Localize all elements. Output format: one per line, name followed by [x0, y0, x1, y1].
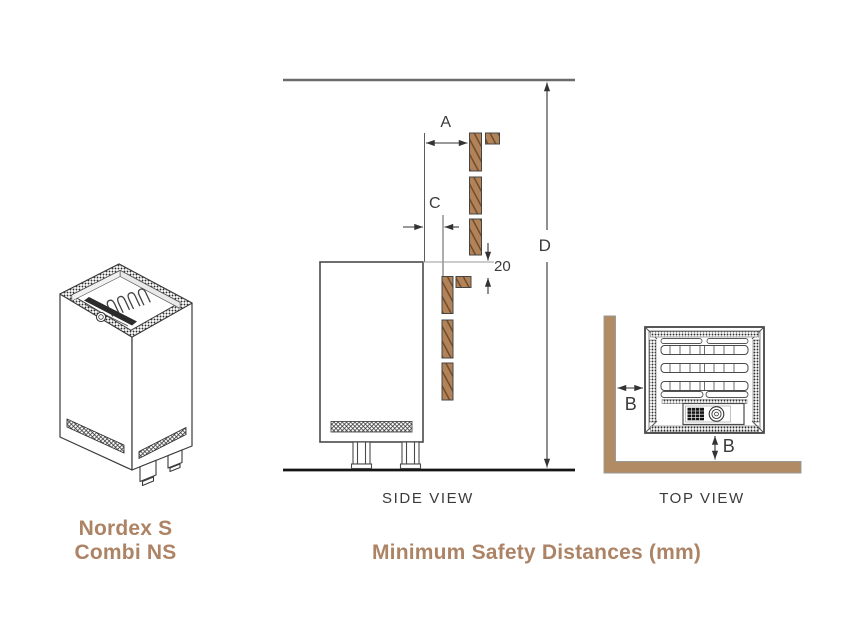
control-panel: [683, 404, 744, 425]
side-view-caption: SIDE VIEW: [343, 491, 513, 506]
product-name: Nordex S Combi NS: [45, 517, 206, 564]
dimension-20-label: 20: [494, 259, 524, 274]
dimension-b-rear-label: B: [709, 437, 749, 455]
dimension-c-label: C: [415, 196, 455, 212]
fragrance-cup: [96, 312, 105, 321]
control-knob: [709, 407, 724, 422]
product-name-line1: Nordex S: [45, 517, 206, 541]
heater-side-outline: [320, 262, 423, 442]
side-view-diagram: [283, 80, 575, 470]
top-view-caption: TOP VIEW: [617, 491, 787, 506]
dimension-b-wall-label: B: [611, 395, 651, 413]
page-title: Minimum Safety Distances (mm): [336, 541, 737, 565]
heater-top-outline: [645, 327, 764, 433]
heater-side-legs: [352, 442, 421, 469]
dimension-a-label: A: [426, 115, 466, 131]
element-slat-rows: [661, 346, 748, 391]
product-name-line2: Combi NS: [45, 541, 206, 565]
safety-distance-diagram-page: A C D 20 B B SIDE VIEW TOP VIEW Nordex S…: [0, 0, 860, 619]
wall-battens-lower: [442, 277, 471, 401]
wall-battens-upper: [470, 133, 500, 255]
vent-grille: [331, 422, 412, 433]
dimension-d-label: D: [525, 237, 565, 254]
isometric-heater-drawing: [60, 264, 192, 486]
